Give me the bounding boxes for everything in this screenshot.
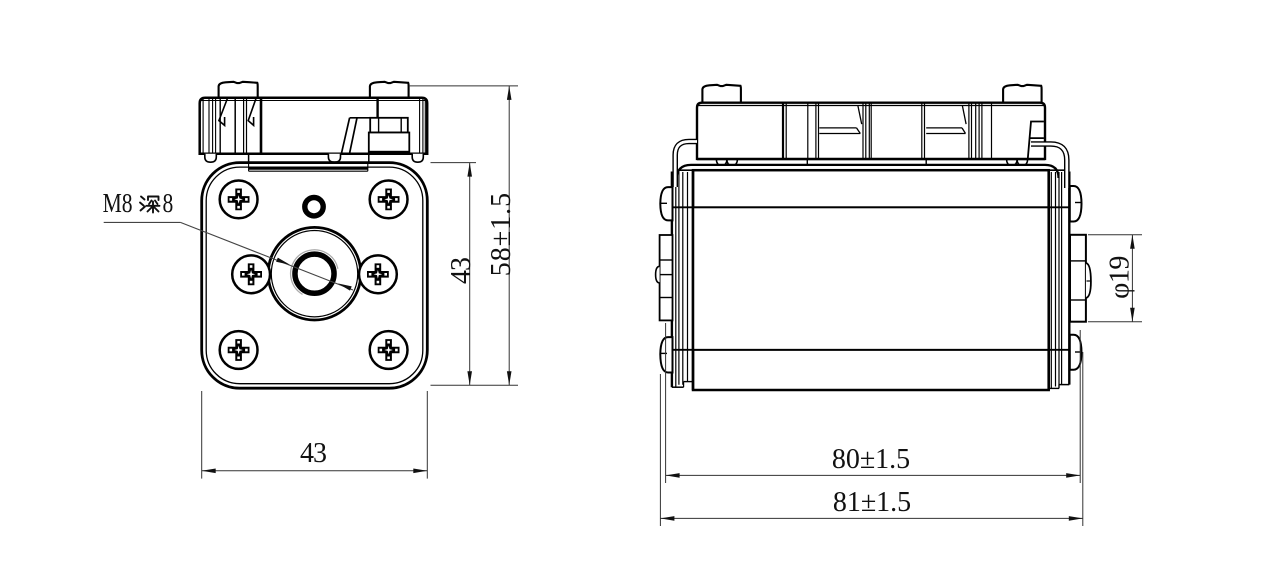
svg-text:43: 43 [446,258,477,284]
svg-text:58±1.5: 58±1.5 [486,192,517,276]
svg-text:43: 43 [300,438,326,469]
svg-text:8: 8 [163,189,174,219]
svg-text:M8: M8 [103,189,133,219]
svg-text:81±1.5: 81±1.5 [833,487,911,518]
svg-text:φ19: φ19 [1105,256,1136,299]
svg-text:80±1.5: 80±1.5 [832,444,910,475]
